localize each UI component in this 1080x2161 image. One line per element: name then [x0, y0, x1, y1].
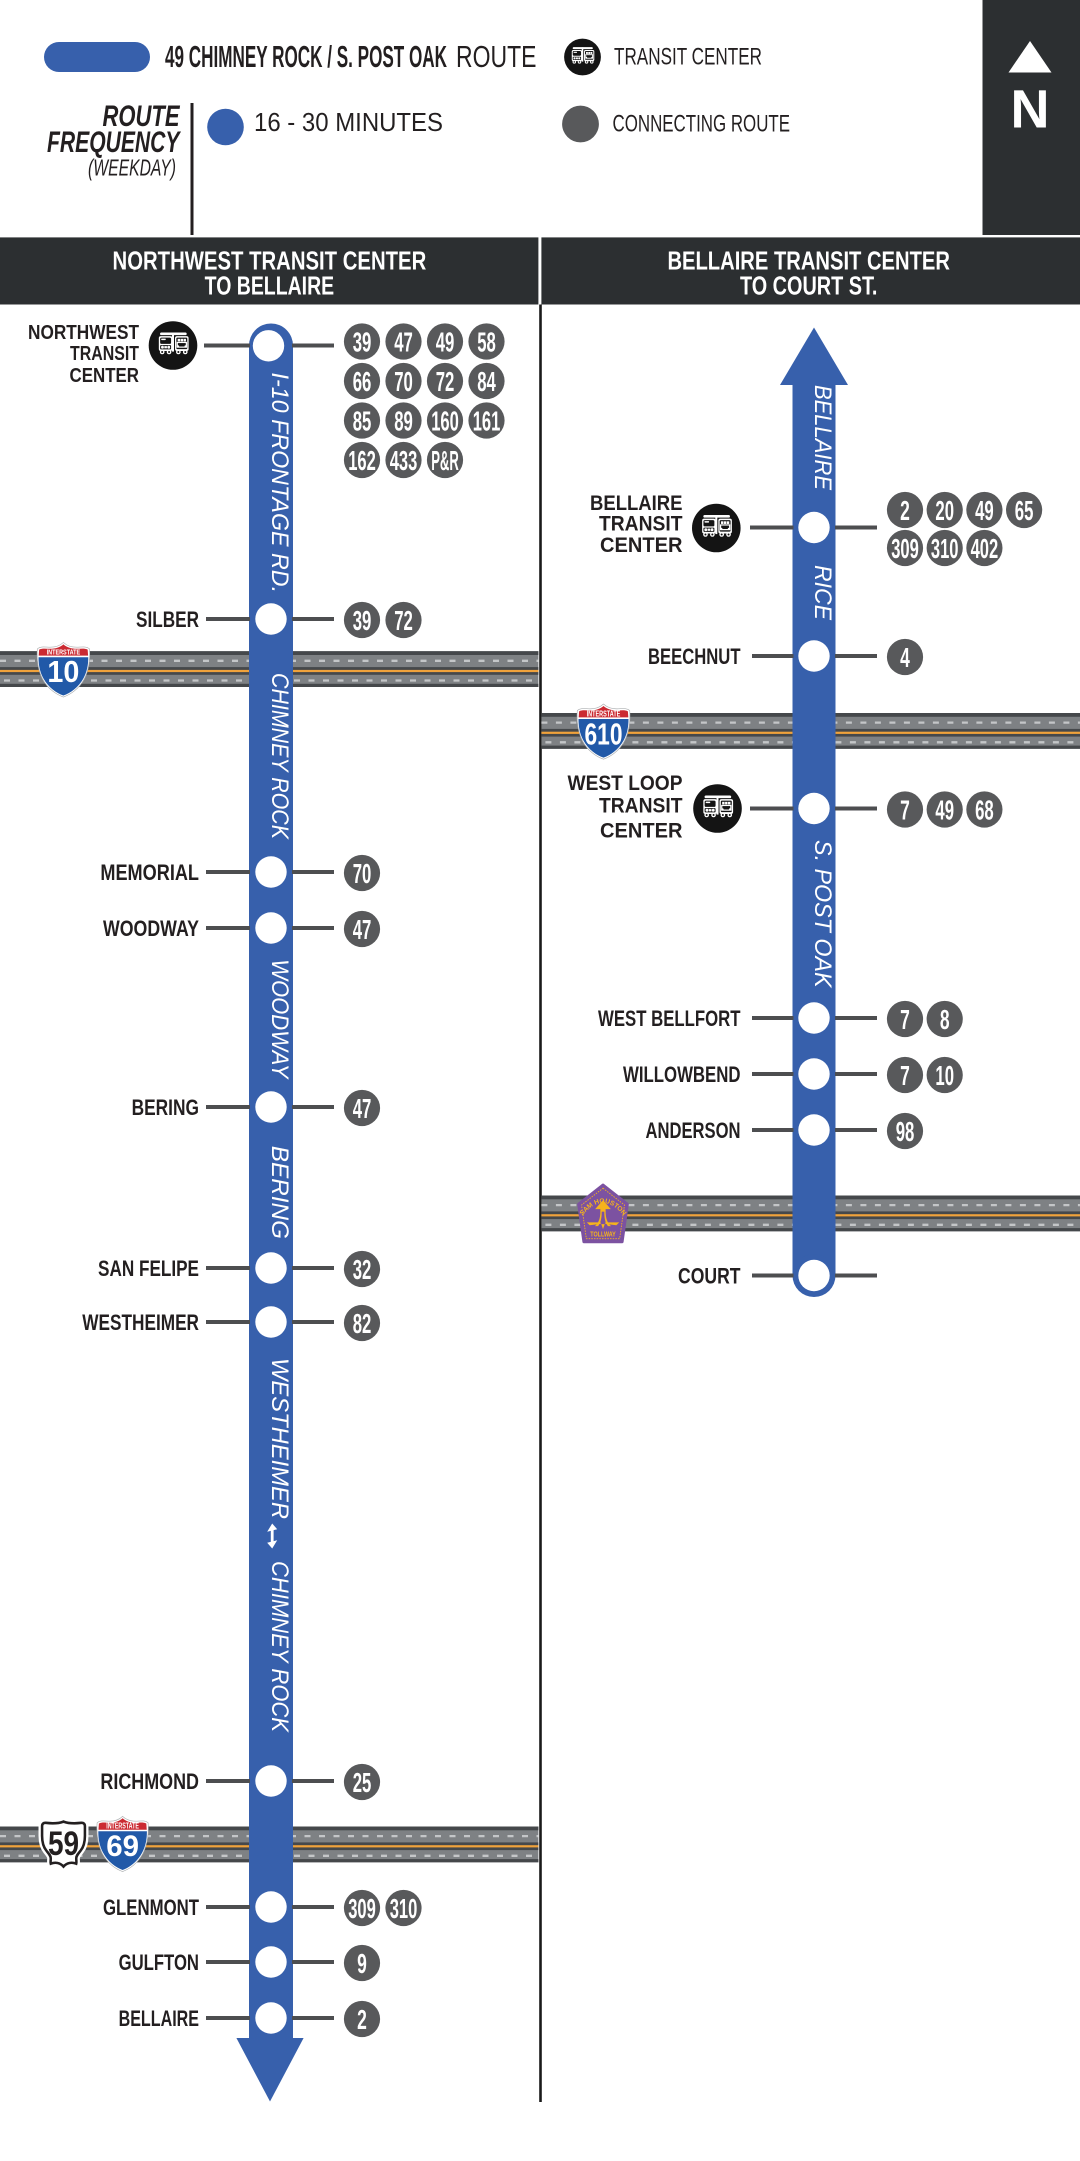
svg-text:TO COURT ST.: TO COURT ST. — [740, 270, 878, 300]
svg-text:85: 85 — [353, 405, 372, 437]
svg-text:NORTHWEST: NORTHWEST — [28, 322, 139, 344]
svg-text:CHIMNEY ROCK: CHIMNEY ROCK — [266, 673, 293, 840]
svg-text:10: 10 — [935, 1059, 954, 1091]
svg-text:433: 433 — [390, 444, 418, 476]
svg-text:161: 161 — [473, 405, 501, 437]
svg-text:309: 309 — [348, 1892, 376, 1924]
svg-text:CHIMNEY ROCK: CHIMNEY ROCK — [266, 1561, 293, 1733]
svg-text:RICHMOND: RICHMOND — [100, 1769, 199, 1794]
svg-text:ROUTE: ROUTE — [456, 39, 537, 74]
svg-text:S. POST OAK: S. POST OAK — [809, 840, 836, 988]
svg-text:39: 39 — [353, 604, 372, 636]
svg-text:49 CHIMNEY ROCK / S. POST OAK: 49 CHIMNEY ROCK / S. POST OAK — [165, 39, 447, 74]
svg-text:GLENMONT: GLENMONT — [103, 1895, 199, 1920]
svg-text:CENTER: CENTER — [70, 365, 140, 387]
svg-text:TO BELLAIRE: TO BELLAIRE — [205, 270, 335, 300]
svg-text:49: 49 — [975, 494, 994, 526]
svg-text:98: 98 — [896, 1115, 915, 1147]
svg-text:7: 7 — [900, 1059, 910, 1091]
svg-text:TRANSIT CENTER: TRANSIT CENTER — [614, 44, 762, 71]
svg-text:INTERSTATE: INTERSTATE — [47, 648, 81, 657]
svg-text:32: 32 — [353, 1253, 372, 1285]
svg-text:INTERSTATE: INTERSTATE — [106, 1822, 139, 1831]
svg-text:WESTHEIMER: WESTHEIMER — [82, 1310, 199, 1335]
svg-text:BERING: BERING — [266, 1146, 293, 1239]
svg-text:89: 89 — [394, 405, 413, 437]
svg-text:84: 84 — [477, 365, 496, 397]
svg-text:47: 47 — [353, 913, 372, 945]
svg-text:49: 49 — [935, 794, 954, 826]
svg-text:310: 310 — [931, 532, 959, 564]
svg-text:7: 7 — [900, 794, 910, 826]
svg-text:2: 2 — [357, 2003, 367, 2035]
svg-text:MEMORIAL: MEMORIAL — [100, 860, 199, 885]
svg-text:16 - 30 MINUTES: 16 - 30 MINUTES — [254, 107, 443, 137]
svg-text:BELLAIRE: BELLAIRE — [809, 385, 836, 491]
svg-text:70: 70 — [394, 365, 413, 397]
svg-text:66: 66 — [353, 365, 372, 397]
svg-text:58: 58 — [477, 326, 496, 358]
svg-text:610: 610 — [585, 718, 623, 752]
svg-text:309: 309 — [891, 532, 919, 564]
svg-text:ANDERSON: ANDERSON — [646, 1118, 741, 1143]
svg-text:72: 72 — [394, 604, 413, 636]
svg-text:39: 39 — [353, 326, 372, 358]
svg-text:72: 72 — [436, 365, 455, 397]
svg-text:7: 7 — [900, 1003, 910, 1035]
svg-text:TRANSIT: TRANSIT — [599, 795, 683, 818]
svg-text:WEST BELLFORT: WEST BELLFORT — [598, 1006, 741, 1031]
svg-text:47: 47 — [394, 326, 413, 358]
svg-text:CENTER: CENTER — [600, 820, 683, 843]
svg-text:SAN FELIPE: SAN FELIPE — [98, 1256, 199, 1281]
svg-text:68: 68 — [975, 794, 994, 826]
svg-text:CONNECTING ROUTE: CONNECTING ROUTE — [613, 111, 791, 138]
svg-text:82: 82 — [353, 1307, 372, 1339]
svg-text:2: 2 — [900, 494, 910, 526]
svg-text:310: 310 — [390, 1892, 418, 1924]
svg-text:GULFTON: GULFTON — [119, 1950, 199, 1975]
svg-text:BELLAIRE: BELLAIRE — [119, 2006, 199, 2031]
svg-text:TRANSIT: TRANSIT — [70, 343, 139, 365]
svg-text:WILLOWBEND: WILLOWBEND — [623, 1062, 741, 1087]
svg-text:TOLLWAY: TOLLWAY — [590, 1232, 616, 1239]
svg-text:25: 25 — [353, 1766, 372, 1798]
svg-text:SILBER: SILBER — [136, 607, 199, 632]
svg-text:TRANSIT: TRANSIT — [599, 513, 683, 536]
svg-text:8: 8 — [940, 1003, 950, 1035]
svg-text:WESTHEIMER: WESTHEIMER — [266, 1358, 293, 1519]
svg-text:N: N — [1011, 80, 1050, 140]
svg-text:P&R: P&R — [431, 444, 459, 476]
svg-text:4: 4 — [900, 641, 910, 673]
svg-text:47: 47 — [353, 1092, 372, 1124]
svg-text:162: 162 — [348, 444, 376, 476]
svg-text:20: 20 — [935, 494, 954, 526]
svg-text:WOODWAY: WOODWAY — [103, 916, 199, 941]
svg-text:CENTER: CENTER — [600, 534, 683, 557]
svg-text:BERING: BERING — [132, 1095, 199, 1120]
svg-text:10: 10 — [47, 656, 79, 689]
svg-text:WOODWAY: WOODWAY — [266, 959, 293, 1080]
svg-text:49: 49 — [436, 326, 455, 358]
svg-text:402: 402 — [971, 532, 999, 564]
svg-text:WEST LOOP: WEST LOOP — [568, 772, 683, 795]
svg-text:59: 59 — [48, 1825, 79, 1863]
svg-text:RICE: RICE — [809, 565, 836, 621]
svg-text:BEECHNUT: BEECHNUT — [648, 644, 741, 669]
svg-text:COURT: COURT — [678, 1264, 741, 1289]
svg-text:70: 70 — [353, 857, 372, 889]
svg-text:I-10 FRONTAGE RD.: I-10 FRONTAGE RD. — [266, 373, 293, 594]
svg-text:160: 160 — [431, 405, 459, 437]
svg-text:(WEEKDAY): (WEEKDAY) — [88, 155, 176, 181]
svg-text:65: 65 — [1015, 494, 1034, 526]
svg-text:69: 69 — [106, 1831, 139, 1864]
svg-text:9: 9 — [357, 1947, 367, 1979]
